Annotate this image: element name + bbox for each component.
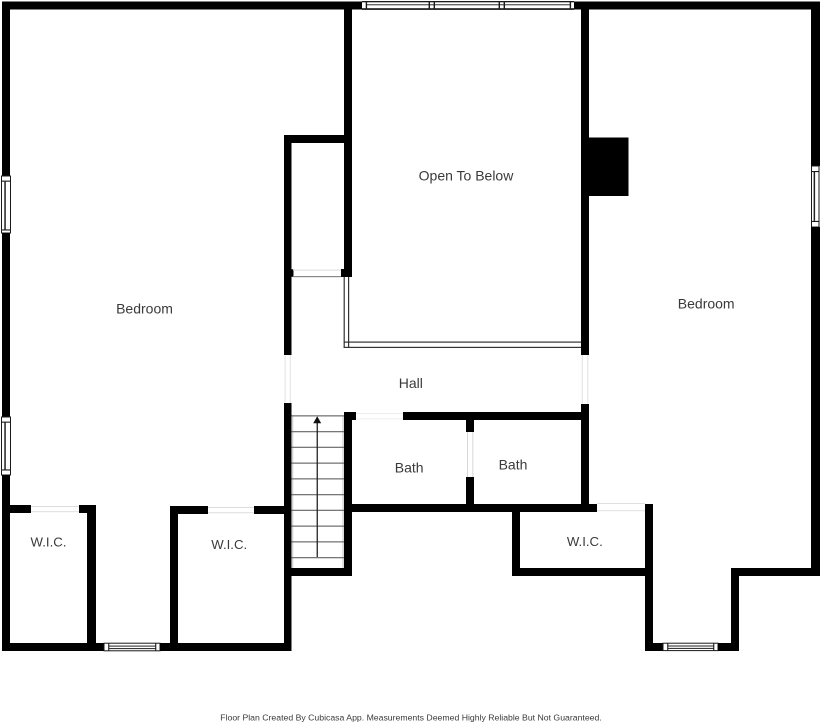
svg-text:Floor Plan Created By Cubicasa: Floor Plan Created By Cubicasa App. Meas… bbox=[220, 712, 601, 722]
svg-text:W.I.C.: W.I.C. bbox=[31, 534, 67, 549]
svg-text:W.I.C.: W.I.C. bbox=[567, 534, 603, 549]
svg-text:Bath: Bath bbox=[395, 460, 424, 476]
svg-text:Open To Below: Open To Below bbox=[419, 167, 515, 183]
svg-text:Bedroom: Bedroom bbox=[678, 296, 735, 312]
svg-text:Hall: Hall bbox=[399, 375, 423, 391]
svg-text:Bedroom: Bedroom bbox=[116, 300, 173, 316]
svg-text:Bath: Bath bbox=[499, 457, 528, 473]
svg-text:W.I.C.: W.I.C. bbox=[211, 537, 247, 552]
